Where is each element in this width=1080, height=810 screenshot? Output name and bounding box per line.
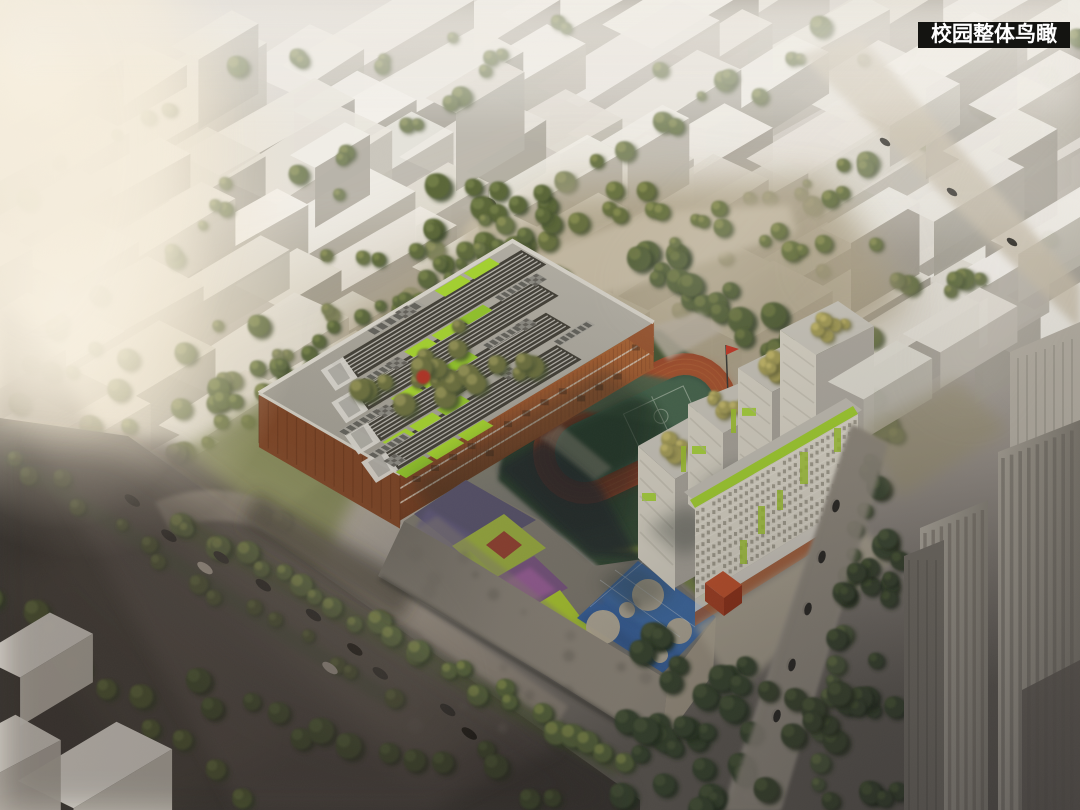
svg-text:校园整体鸟瞰: 校园整体鸟瞰 [931,22,1058,46]
